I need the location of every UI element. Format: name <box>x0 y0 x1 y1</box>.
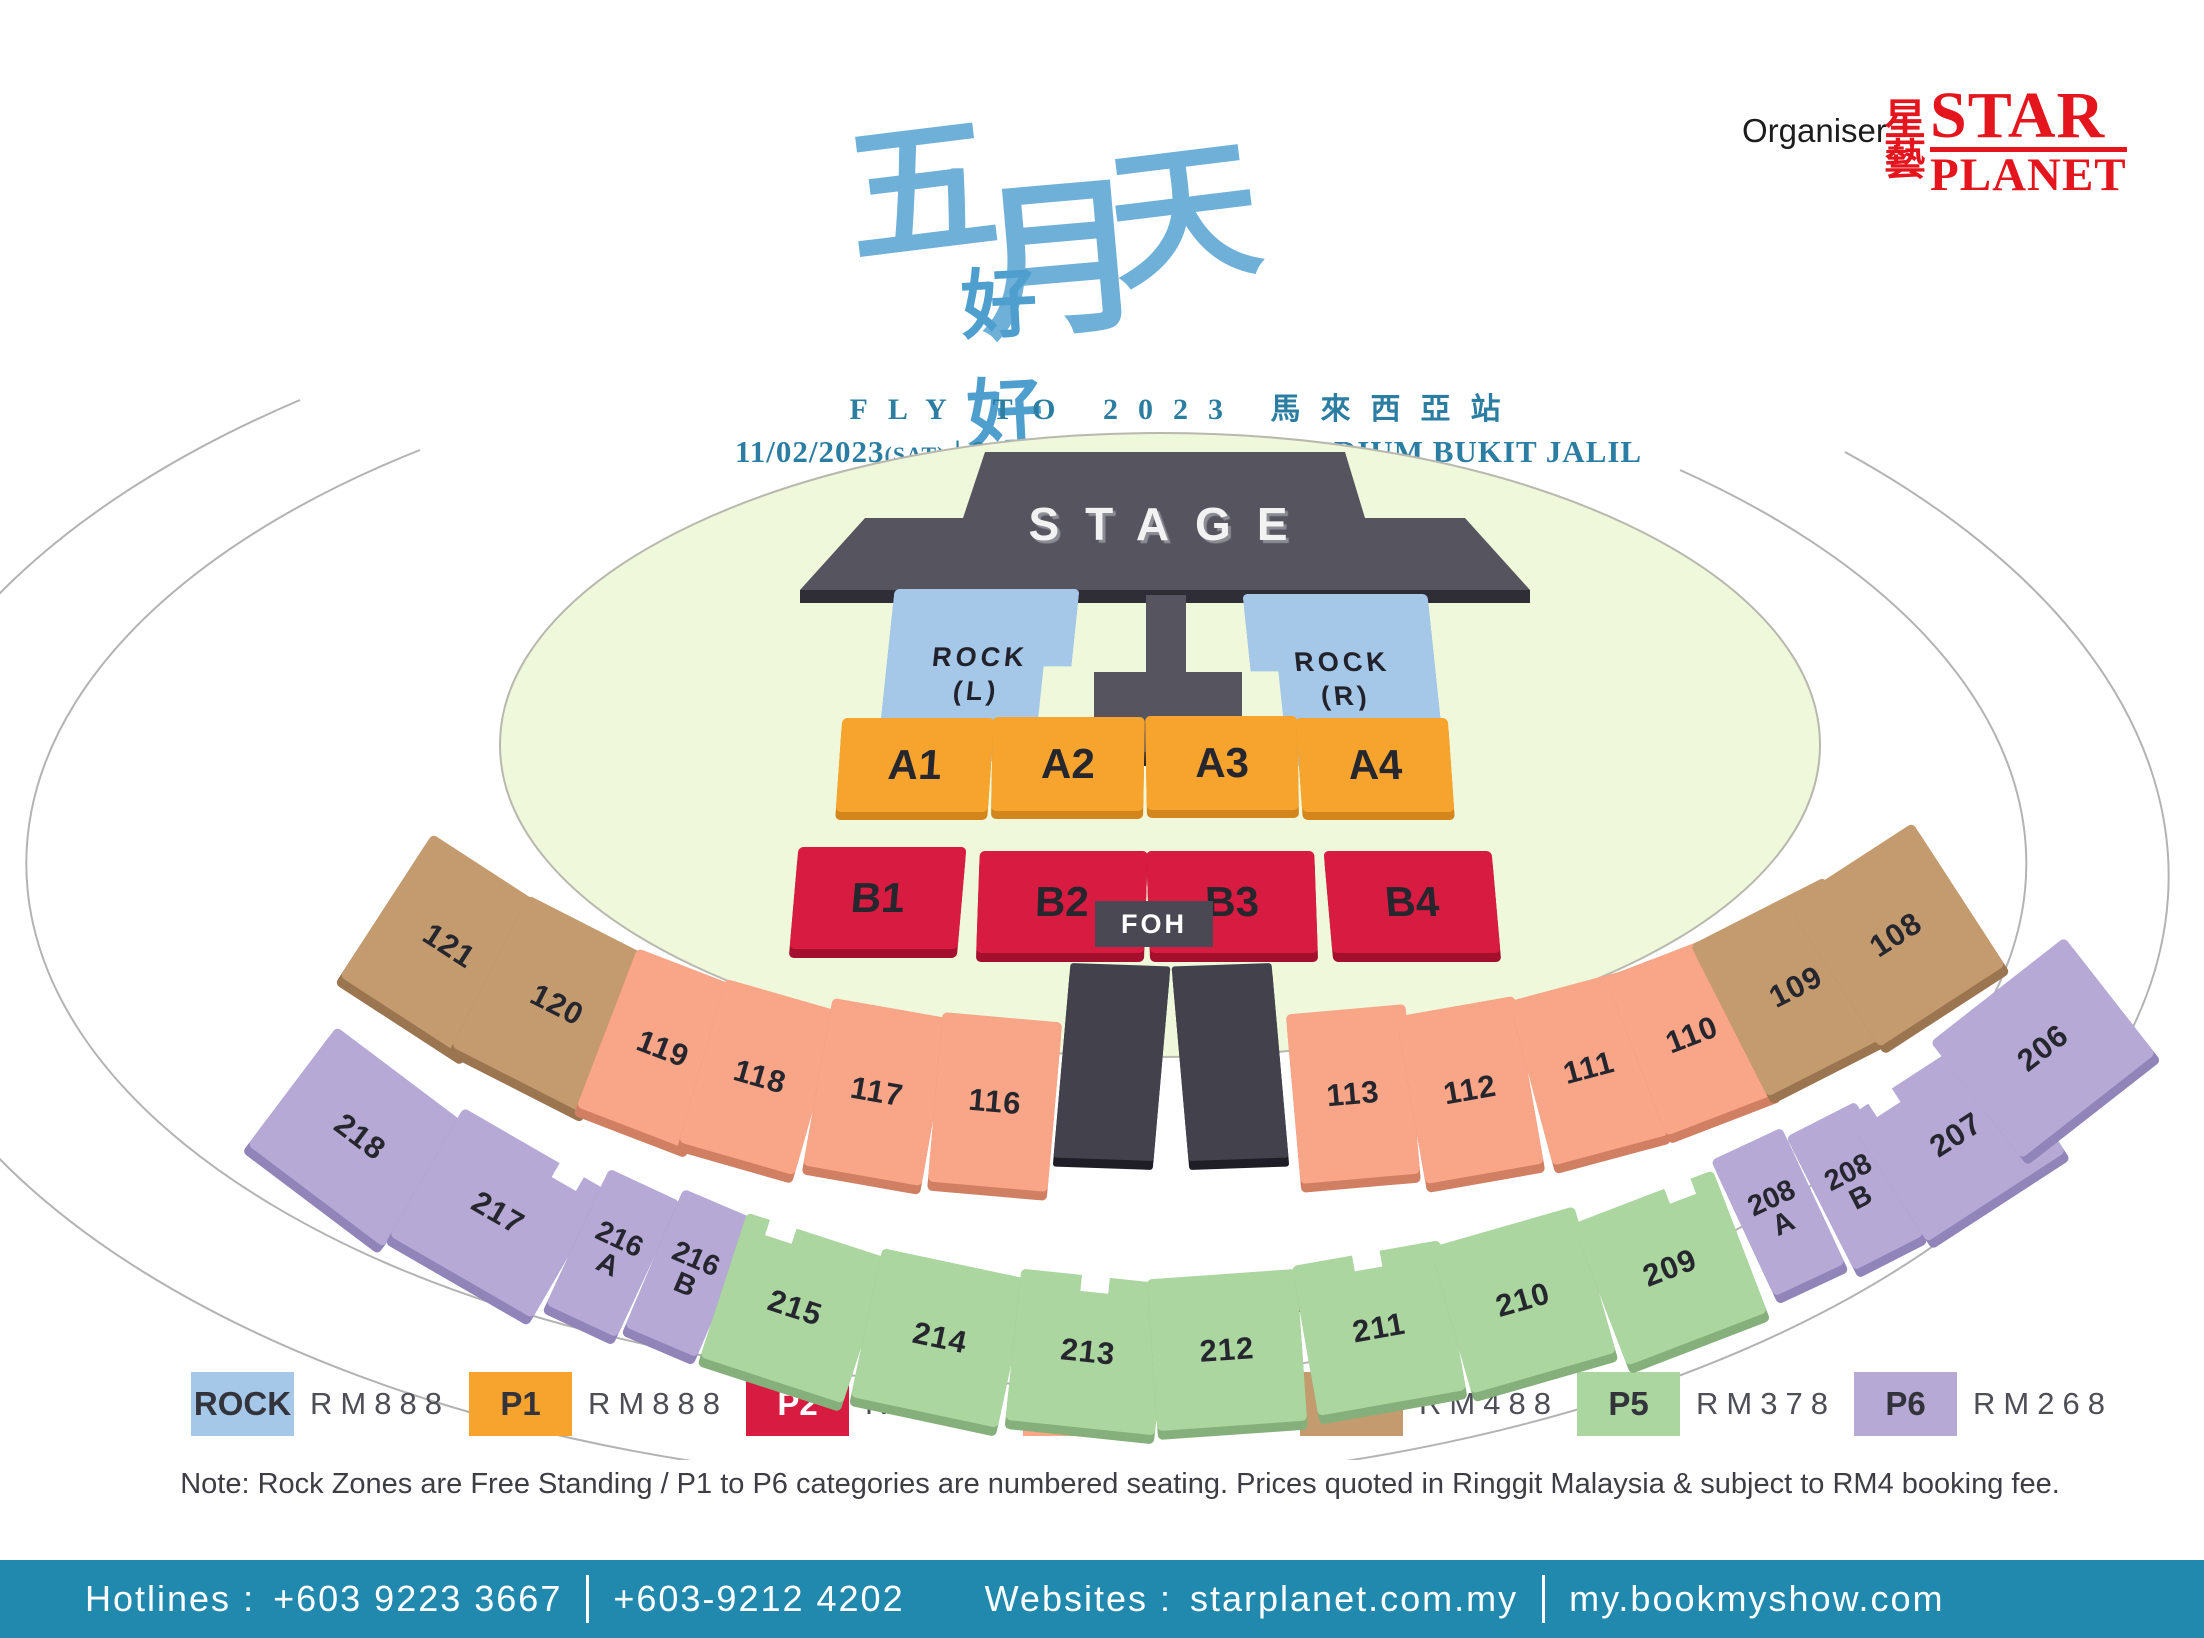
footer-bar: Hotlines : +603 9223 3667 +603-9212 4202… <box>0 1560 2204 1638</box>
zone-label: A3 <box>1195 739 1250 787</box>
section-label: 213 <box>1059 1331 1117 1373</box>
zone-b1[interactable]: B1 <box>790 847 967 949</box>
section-label: 118 <box>730 1052 791 1101</box>
section-label: 209 <box>1638 1241 1702 1294</box>
legend-swatch-p6: P6 <box>1854 1372 1957 1436</box>
tech-block-left <box>1054 963 1171 1161</box>
rock-right-line2: (R) <box>1319 680 1372 714</box>
foh-box: FOH <box>1095 901 1213 947</box>
zone-b4[interactable]: B4 <box>1324 851 1501 953</box>
section-letter: B <box>1846 1181 1877 1215</box>
legend-code: P1 <box>500 1385 540 1423</box>
legend-code: P6 <box>1885 1385 1925 1423</box>
legend-item-p5: P5 RM378 <box>1577 1372 1836 1436</box>
zone-a4[interactable]: A4 <box>1296 718 1455 812</box>
section-label: 119 <box>632 1023 694 1076</box>
legend-price: RM888 <box>588 1386 728 1422</box>
divider <box>586 1575 589 1623</box>
zone-label: B2 <box>1034 878 1089 926</box>
section-label: 218 <box>327 1106 392 1168</box>
legend-item-rock: ROCK RM888 <box>191 1372 450 1436</box>
section-label: 216A <box>579 1218 646 1288</box>
pricing-note: Note: Rock Zones are Free Standing / P1 … <box>180 1468 2060 1501</box>
section-212[interactable]: 212 <box>1147 1269 1307 1431</box>
section-label: 120 <box>524 977 589 1034</box>
legend-item-p6: P6 RM268 <box>1854 1372 2113 1436</box>
tech-block-right <box>1172 963 1289 1161</box>
legend-price: RM268 <box>1973 1386 2113 1422</box>
section-label: 214 <box>909 1315 970 1362</box>
website-bookmyshow[interactable]: my.bookmyshow.com <box>1569 1578 1944 1620</box>
zone-a1[interactable]: A1 <box>836 718 995 812</box>
section-label: 112 <box>1441 1068 1499 1113</box>
section-label: 215 <box>763 1282 826 1333</box>
section-label: 207 <box>1923 1105 1989 1165</box>
section-label: 217 <box>465 1184 530 1243</box>
rock-right-line1: ROCK <box>1293 646 1392 680</box>
zone-label: A2 <box>1041 740 1096 788</box>
section-letter: A <box>592 1249 623 1283</box>
websites-group: Websites : starplanet.com.my my.bookmysh… <box>985 1575 1945 1623</box>
section-label: 208A <box>1744 1177 1811 1247</box>
section-label: 211 <box>1350 1306 1408 1351</box>
rock-left-line1: ROCK <box>930 641 1029 675</box>
section-label: 117 <box>848 1070 906 1115</box>
rock-left-line2: (L) <box>951 675 1001 709</box>
website-starplanet[interactable]: starplanet.com.my <box>1190 1578 1518 1620</box>
legend-price: RM378 <box>1696 1386 1836 1422</box>
legend-code: ROCK <box>194 1385 291 1423</box>
zone-label: B1 <box>849 874 907 922</box>
legend-code: P5 <box>1608 1385 1648 1423</box>
section-letter: B <box>670 1269 700 1303</box>
hotline-phone-2: +603-9212 4202 <box>613 1578 904 1620</box>
section-label: 210 <box>1492 1275 1555 1325</box>
section-label: 212 <box>1198 1330 1255 1370</box>
legend-price: RM888 <box>310 1386 450 1422</box>
legend-swatch-rock: ROCK <box>191 1372 294 1436</box>
zone-label: A4 <box>1346 741 1403 789</box>
zone-a3[interactable]: A3 <box>1145 716 1299 810</box>
stage-label: STAGE <box>1002 497 1313 551</box>
zone-label: ROCK (R) <box>1293 646 1396 714</box>
hotlines-group: Hotlines : +603 9223 3667 +603-9212 4202 <box>85 1575 905 1623</box>
section-label: 216B <box>657 1238 723 1308</box>
section-label: 113 <box>1325 1074 1381 1114</box>
websites-label: Websites : <box>985 1578 1172 1620</box>
zone-a2[interactable]: A2 <box>991 717 1145 811</box>
legend-swatch-p5: P5 <box>1577 1372 1680 1436</box>
divider <box>1542 1575 1545 1623</box>
section-label: 111 <box>1560 1044 1619 1092</box>
section-label: 109 <box>1763 959 1828 1016</box>
hotline-phone-1: +603 9223 3667 <box>273 1578 562 1620</box>
zone-label: A1 <box>886 741 943 789</box>
section-213[interactable]: 213 <box>1005 1269 1170 1436</box>
section-notch <box>1352 1249 1383 1272</box>
section-label: 121 <box>416 916 482 976</box>
section-116[interactable]: 116 <box>928 1012 1062 1192</box>
legend-swatch-p1: P1 <box>469 1372 572 1436</box>
section-letter: A <box>1768 1208 1799 1242</box>
hotlines-label: Hotlines : <box>85 1578 255 1620</box>
section-label: 206 <box>2010 1017 2075 1079</box>
section-notch <box>1080 1273 1110 1294</box>
section-214[interactable]: 214 <box>851 1248 1029 1428</box>
section-label: 110 <box>1661 1009 1723 1062</box>
section-label: 116 <box>967 1082 1023 1122</box>
zone-label: ROCK (L) <box>927 641 1030 709</box>
zone-label: B4 <box>1383 878 1441 926</box>
section-label: 108 <box>1863 905 1929 965</box>
legend-item-p1: P1 RM888 <box>469 1372 728 1436</box>
